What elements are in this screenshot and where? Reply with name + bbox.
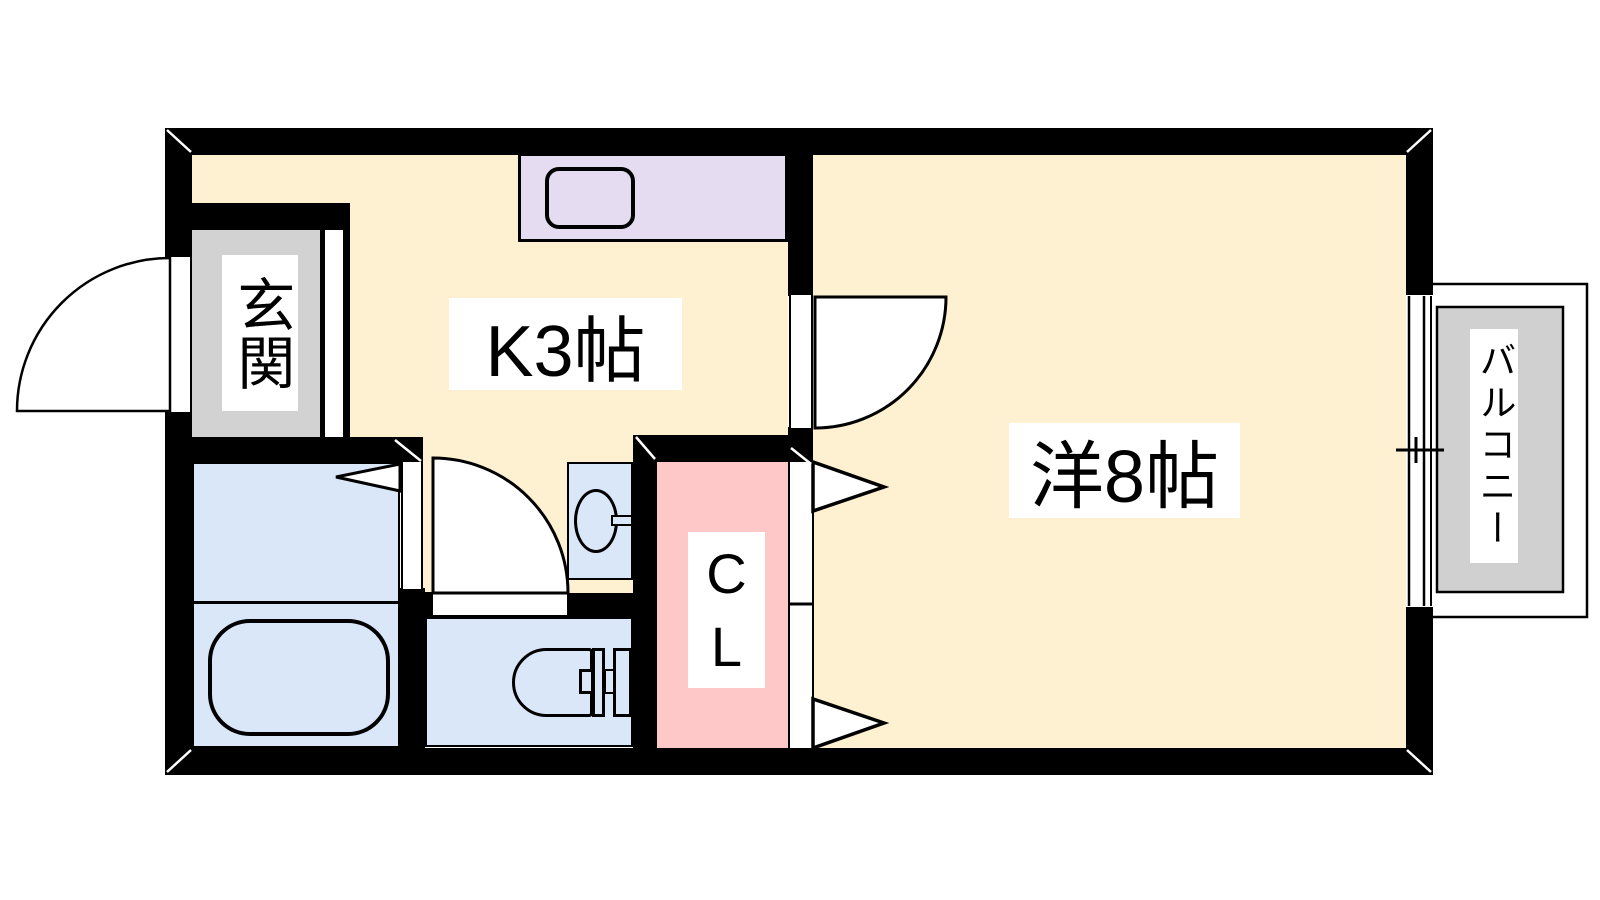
entrance-label: 玄関 — [222, 255, 298, 411]
wall-outer-right-upper — [1406, 128, 1433, 296]
wall-kitchen-main-stub — [788, 427, 813, 463]
toilet-door-opening — [433, 592, 567, 617]
washbasin-faucet-icon — [611, 515, 633, 526]
closet-door-track — [788, 462, 814, 748]
entrance-door-swing-icon — [17, 258, 170, 411]
floorplan-canvas: 玄関 K3帖 洋8帖 C L バルコニー — [0, 0, 1600, 900]
wall-entrance-top — [168, 203, 350, 230]
bathroom-door-opening — [401, 462, 423, 589]
wall-nook-closet — [633, 435, 657, 748]
balcony-label: バルコニー — [1470, 329, 1518, 563]
wall-bathroom-toilet — [400, 588, 425, 748]
wall-outer-left-upper — [165, 128, 192, 258]
entrance-door-opening — [166, 257, 192, 412]
wall-kitchen-main-upper — [788, 128, 813, 296]
entrance-step — [320, 230, 350, 437]
wall-outer-left-lower — [165, 411, 192, 775]
main-room-door-opening — [789, 295, 813, 428]
wall-toilet-right — [567, 593, 633, 617]
wall-outer-right-lower — [1406, 606, 1433, 775]
wall-closet-top — [655, 435, 790, 462]
kitchen-sink-icon — [545, 167, 635, 229]
bathtub-icon — [208, 619, 390, 736]
wall-toilet-stub — [423, 592, 433, 617]
balcony-window-opening — [1406, 295, 1433, 607]
closet-label: C L — [688, 532, 765, 688]
main-room-label: 洋8帖 — [1009, 423, 1240, 518]
bathroom-divider-line — [192, 601, 400, 604]
toilet-tank-icon — [613, 648, 632, 717]
kitchen-label: K3帖 — [449, 298, 682, 390]
wall-entrance-bottom — [168, 437, 423, 463]
wall-outer-bottom — [165, 748, 1433, 775]
